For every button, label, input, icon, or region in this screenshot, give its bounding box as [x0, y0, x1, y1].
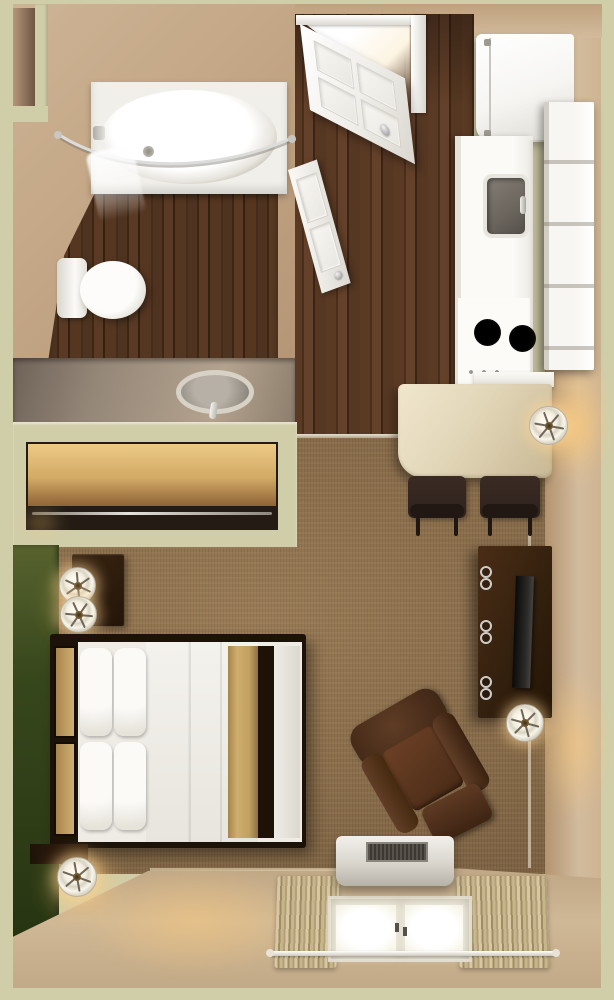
fridge-door-seam [489, 38, 491, 138]
pillow [114, 742, 146, 830]
chair-leg [454, 517, 458, 536]
drawer-handles [480, 566, 489, 590]
bed-runner [228, 646, 258, 838]
entry-door-frame-top [296, 15, 426, 25]
ac-grille [366, 842, 428, 862]
rod-finial [552, 949, 560, 957]
entry-door-frame-side [411, 15, 426, 113]
curtain-rod [270, 951, 556, 956]
dining-chair-left [408, 476, 466, 518]
headboard-panel [54, 646, 76, 738]
pillow [114, 648, 146, 736]
table-lamp-2 [60, 596, 97, 633]
bathroom-door-knob [334, 270, 343, 280]
burner-left [474, 319, 501, 346]
closet-rod [32, 512, 272, 515]
headboard-panel [54, 742, 76, 836]
vanity-counter [13, 358, 295, 422]
vanity-faucet [209, 402, 218, 420]
window-pane-left [336, 905, 396, 953]
window-latch [403, 927, 407, 936]
tall-cabinet [544, 102, 594, 370]
pillow [80, 648, 112, 736]
window-pane-right [405, 905, 463, 953]
bed-floor-lamp [57, 857, 97, 897]
dining-wall-lamp [529, 406, 568, 445]
toilet-bowl [80, 261, 146, 319]
drawer-handles [480, 676, 489, 700]
fridge-hinge-top [484, 39, 491, 46]
ac-unit [336, 836, 454, 886]
closet-light-glow [18, 505, 64, 541]
drawer-handles [480, 620, 489, 644]
dining-chair-right [480, 476, 540, 518]
chair-leg [488, 517, 492, 536]
wall-niche [13, 8, 35, 108]
bed [50, 634, 306, 848]
kitchen-faucet [520, 196, 526, 214]
niche-wall-edge [35, 4, 48, 122]
shower-curtain-rod [48, 110, 298, 190]
chair-leg [416, 517, 420, 536]
bed-foot-white [274, 646, 300, 838]
rod-finial [266, 949, 274, 957]
closet-shelf [28, 444, 276, 506]
niche-wall-bottom [13, 106, 48, 122]
tv-floor-lamp [506, 704, 544, 742]
bed-foot-band [258, 646, 274, 838]
window-latch [395, 923, 399, 932]
floorplan-scene [0, 0, 614, 1000]
pillow [80, 742, 112, 830]
chair-leg [528, 517, 532, 536]
